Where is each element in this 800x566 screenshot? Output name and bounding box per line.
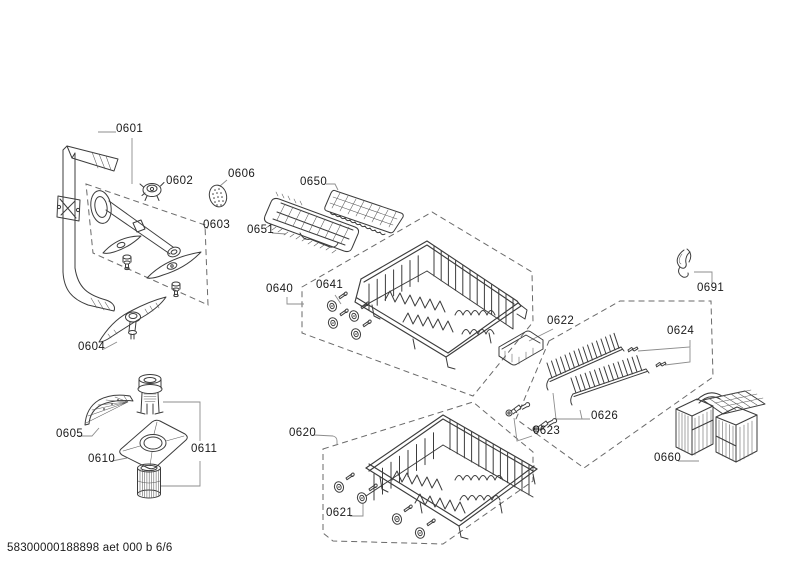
diagram-art	[0, 0, 800, 566]
callout-0605[interactable]: 0605	[56, 429, 83, 440]
callout-0641[interactable]: 0641	[316, 280, 343, 291]
lower-spray-arm-drawing	[99, 297, 166, 342]
callout-0601[interactable]: 0601	[116, 124, 143, 135]
callout-0603[interactable]: 0603	[203, 220, 230, 231]
parts-diagram-page: 0601 0602 0606 0603 0604 0605 0610 0611 …	[0, 0, 800, 566]
upper-basket-drawing	[355, 241, 527, 369]
callout-0626[interactable]: 0626	[591, 411, 618, 422]
tray-insert-drawing	[325, 190, 404, 234]
folding-tine-rows-drawing	[547, 333, 649, 405]
cutlery-basket-drawing	[676, 390, 765, 462]
callout-0611[interactable]: 0611	[191, 444, 217, 455]
callout-0650[interactable]: 0650	[300, 177, 327, 188]
retainer-hook-drawing	[677, 249, 691, 277]
grommet-1	[123, 255, 131, 270]
callout-0640[interactable]: 0640	[266, 284, 293, 295]
callout-0622[interactable]: 0622	[547, 316, 574, 327]
callout-0624[interactable]: 0624	[667, 326, 694, 337]
callout-0623[interactable]: 0623	[533, 426, 560, 437]
callout-0610[interactable]: 0610	[88, 454, 115, 465]
callout-0660[interactable]: 0660	[654, 453, 681, 464]
callout-0602[interactable]: 0602	[166, 176, 193, 187]
leader-lines	[79, 132, 712, 516]
callout-0651[interactable]: 0651	[247, 225, 274, 236]
callout-0604[interactable]: 0604	[78, 342, 105, 353]
spray-arm-cap-drawing	[140, 183, 164, 201]
callout-0621[interactable]: 0621	[326, 508, 353, 519]
upper-basket-rollers-drawing	[326, 291, 372, 340]
fan-filter-drawing	[85, 395, 133, 425]
mounting-bracket-drawing	[57, 146, 118, 311]
callout-0606[interactable]: 0606	[228, 169, 255, 180]
flat-filter-plate-drawing	[120, 420, 188, 469]
lower-basket-drawing	[366, 415, 537, 539]
micro-filter-drawing	[137, 375, 163, 499]
callout-0620[interactable]: 0620	[289, 428, 316, 439]
sieve-disc-drawing	[207, 183, 229, 208]
grommet-2	[172, 282, 180, 297]
document-code: 58300000188898 aet 000 b 6/6	[7, 542, 172, 554]
group-box-0603	[86, 184, 208, 305]
spray-assembly-drawing	[89, 189, 201, 296]
callout-0691[interactable]: 0691	[697, 283, 724, 294]
group-box-0620	[323, 402, 533, 544]
